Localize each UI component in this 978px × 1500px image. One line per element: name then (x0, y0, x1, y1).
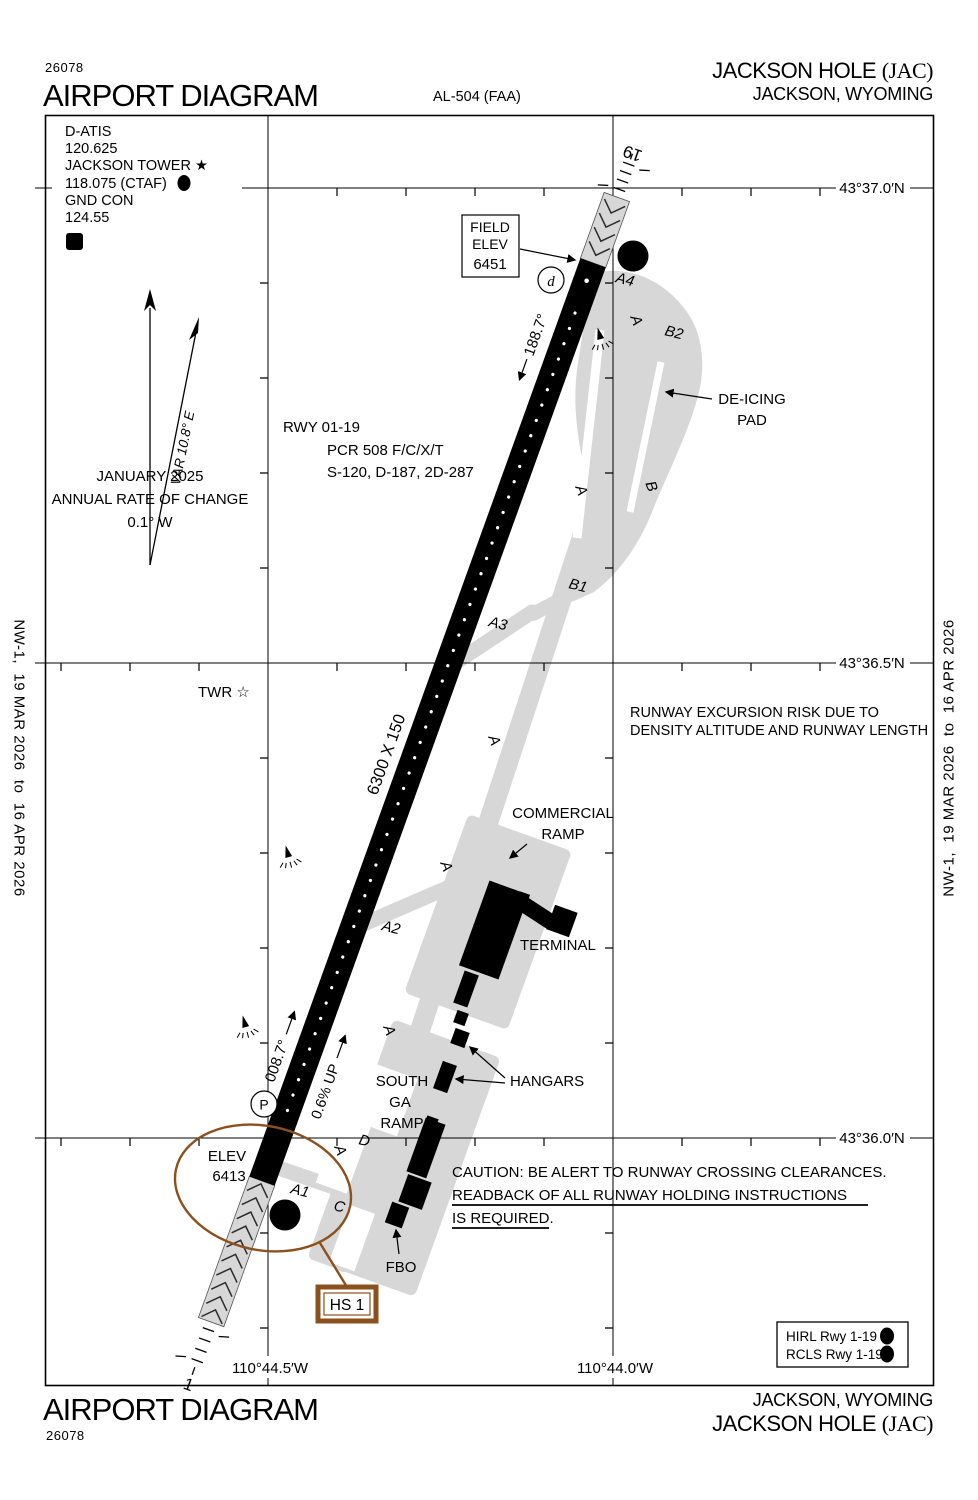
airport-diagram-page: 26078 AIRPORT DIAGRAM AL-504 (FAA) JACKS… (0, 0, 978, 1500)
taxiway-a-label-3: A (484, 732, 504, 748)
tower-freq: 118.075 (CTAF) (65, 176, 167, 192)
light-icon-beam (282, 845, 292, 858)
light-icon (232, 1013, 259, 1041)
excursion-note-2: DENSITY ALTITUDE AND RUNWAY LENGTH (630, 723, 928, 739)
lat-label-bot: 43°36.0′N (839, 1130, 905, 1147)
runway-id: RWY 01-19 (283, 419, 360, 436)
hold-letter: A (279, 1208, 290, 1225)
deicing-label-1: DE-ICING (718, 391, 786, 408)
commercial-label-2: RAMP (541, 826, 584, 843)
gradient-arrow (337, 1036, 345, 1059)
hirl-l-letter: L (884, 1332, 891, 1344)
terminal-pier-end (546, 905, 577, 938)
taxiway-a2-label: A2 (379, 917, 403, 938)
atis-freq: 120.625 (65, 141, 117, 157)
caution-note-3: IS REQUIRED. (452, 1210, 554, 1227)
taxiway-a1-label: A1 (288, 1180, 311, 1201)
light-icon (275, 843, 302, 871)
caution-note-1: CAUTION: BE ALERT TO RUNWAY CROSSING CLE… (452, 1164, 887, 1181)
south-ga-label-1: SOUTH (376, 1073, 429, 1090)
commercial-label-1: COMMERCIAL (512, 805, 614, 822)
field-elev-arrow (520, 249, 575, 260)
lon-label-left: 110°44.5′W (232, 1360, 309, 1377)
field-elev-value: 6451 (473, 256, 506, 273)
runway-data-block: RWY 01-19 PCR 508 F/C/X/T S-120, D-187, … (283, 419, 474, 481)
caution-note-2: READBACK OF ALL RUNWAY HOLDING INSTRUCTI… (452, 1187, 847, 1204)
light-icon-rays (279, 858, 302, 870)
lighting-box: HIRL Rwy 1-19 L RCLS Rwy 1-19 L (777, 1322, 908, 1367)
deicing-label-2: PAD (737, 412, 767, 429)
gnd-label: GND CON (65, 193, 133, 209)
terminal-label: TERMINAL (520, 937, 596, 954)
runway-end-number-1: 1 (181, 1374, 196, 1395)
light-icon-rays (236, 1028, 259, 1040)
magnetic-north-arrowhead (189, 317, 199, 340)
variation-note1: ANNUAL RATE OF CHANGE (52, 491, 249, 508)
variation-date: JANUARY 2025 (96, 468, 203, 485)
hold-sub: 4 (638, 258, 644, 269)
atis-d-letter: D (70, 235, 79, 249)
heading-01-arrow (286, 1012, 294, 1035)
field-elev-line1: FIELD (470, 219, 510, 235)
hold-letter: A (627, 249, 638, 266)
gnd-freq: 124.55 (65, 210, 109, 226)
excursion-note-1: RUNWAY EXCURSION RISK DUE TO (630, 705, 879, 721)
fbo-label: FBO (386, 1259, 417, 1276)
south-elev-value: 6413 (212, 1168, 245, 1185)
variation-block: VAR 10.8° E JANUARY 2025 ANNUAL RATE OF … (52, 289, 249, 565)
tower-label: JACKSON TOWER ★ (65, 158, 208, 174)
field-elev-callout: FIELD ELEV 6451 (462, 215, 575, 277)
hold-sub: 4 (290, 1217, 296, 1228)
displaced-symbol-letter: d (547, 274, 555, 290)
rcls-l-letter: L (884, 1350, 891, 1362)
field-elev-line2: ELEV (472, 236, 508, 252)
lon-label-right: 110°44.0′W (577, 1360, 654, 1377)
light-icon-beam (239, 1015, 249, 1028)
parking-symbol-letter: P (259, 1097, 268, 1113)
airport-diagram-chart: 1 19 (0, 0, 978, 1500)
lat-label-mid: 43°36.5′N (839, 655, 905, 672)
rcls-label: RCLS Rwy 1-19 (786, 1347, 883, 1362)
south-ga-label-3: RAMP (380, 1115, 423, 1132)
tower-label: TWR ☆ (198, 684, 250, 701)
lat-label-top: 43°37.0′N (839, 180, 905, 197)
south-ga-label-2: GA (389, 1094, 411, 1111)
runway-strength: S-120, D-187, 2D-287 (327, 464, 474, 481)
south-elev-label: ELEV (208, 1148, 246, 1165)
atis-label: D-ATIS (65, 124, 111, 140)
variation-note2: 0.1° W (127, 514, 173, 531)
approach-lights-south (171, 1322, 229, 1382)
true-north-arrowhead (144, 289, 156, 311)
runway-pcr: PCR 508 F/C/X/T (327, 442, 444, 459)
heading-19-arrow (519, 359, 526, 380)
hotspot-label: HS 1 (330, 1297, 364, 1314)
hirl-label: HIRL Rwy 1-19 (786, 1329, 877, 1344)
taxiway-b1-connector (533, 592, 575, 614)
hangars-label: HANGARS (510, 1073, 584, 1090)
lighted-airport-letter: L (181, 179, 188, 191)
